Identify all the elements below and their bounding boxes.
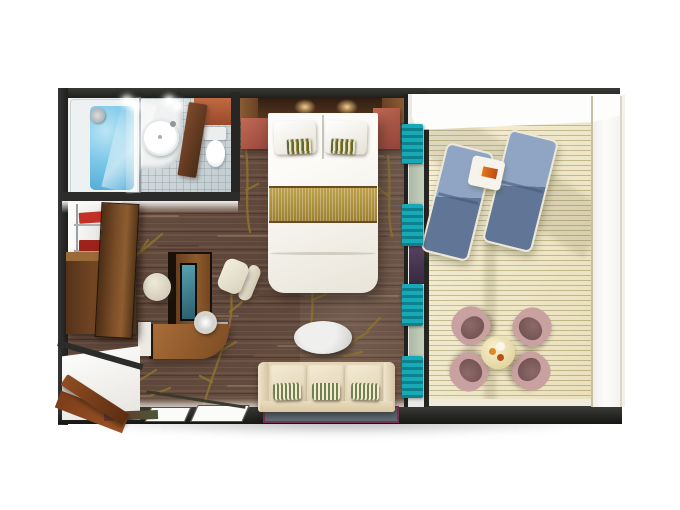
chair-seat — [514, 313, 547, 345]
ceiling-light — [166, 98, 172, 104]
bed-seam — [322, 115, 324, 159]
accent-pillow — [287, 138, 312, 154]
shower-head — [90, 108, 105, 123]
glass-door — [409, 246, 424, 284]
railing-post — [620, 96, 622, 407]
teal-curtain — [402, 204, 423, 246]
ceiling-light — [133, 103, 139, 109]
floorplan-canvas — [0, 0, 680, 510]
ceiling-light — [175, 103, 181, 109]
sofa — [258, 362, 395, 412]
sofa-striped-pillow — [312, 383, 340, 400]
railing-post — [591, 96, 593, 407]
coffee-table — [294, 321, 352, 354]
plate — [496, 342, 505, 351]
wall-bathroom-living — [60, 192, 240, 201]
drain — [158, 135, 162, 139]
glass-panel — [409, 326, 424, 356]
teal-curtain — [402, 284, 423, 326]
chair-seat — [513, 353, 545, 386]
glass-panel — [409, 164, 424, 204]
wardrobe-door — [94, 202, 139, 339]
book — [478, 166, 498, 180]
bed-runner — [269, 186, 377, 223]
balcony-table — [481, 336, 515, 369]
sofa-striped-pillow — [351, 383, 380, 401]
teal-curtain — [402, 124, 423, 164]
teal-curtain — [402, 356, 423, 398]
duvet-fold — [270, 252, 376, 255]
lounger-fold-bar — [500, 180, 542, 193]
wall-bathroom-bedroom — [231, 92, 240, 200]
toilet-tank — [204, 127, 226, 140]
desk-lamp — [194, 311, 217, 334]
lounger-fold-bar — [438, 192, 479, 205]
faucet — [170, 121, 176, 127]
toilet — [206, 140, 225, 167]
sofa-striped-pillow — [273, 383, 302, 401]
drink — [489, 348, 496, 355]
tv-screen — [180, 263, 197, 321]
accent-pillow — [331, 138, 356, 154]
drink — [497, 354, 504, 361]
ceiling-light — [124, 98, 130, 104]
pouf — [143, 273, 171, 301]
wall-top — [58, 88, 430, 98]
lounger-side-table — [467, 155, 506, 191]
sofa-backrest — [260, 401, 393, 412]
